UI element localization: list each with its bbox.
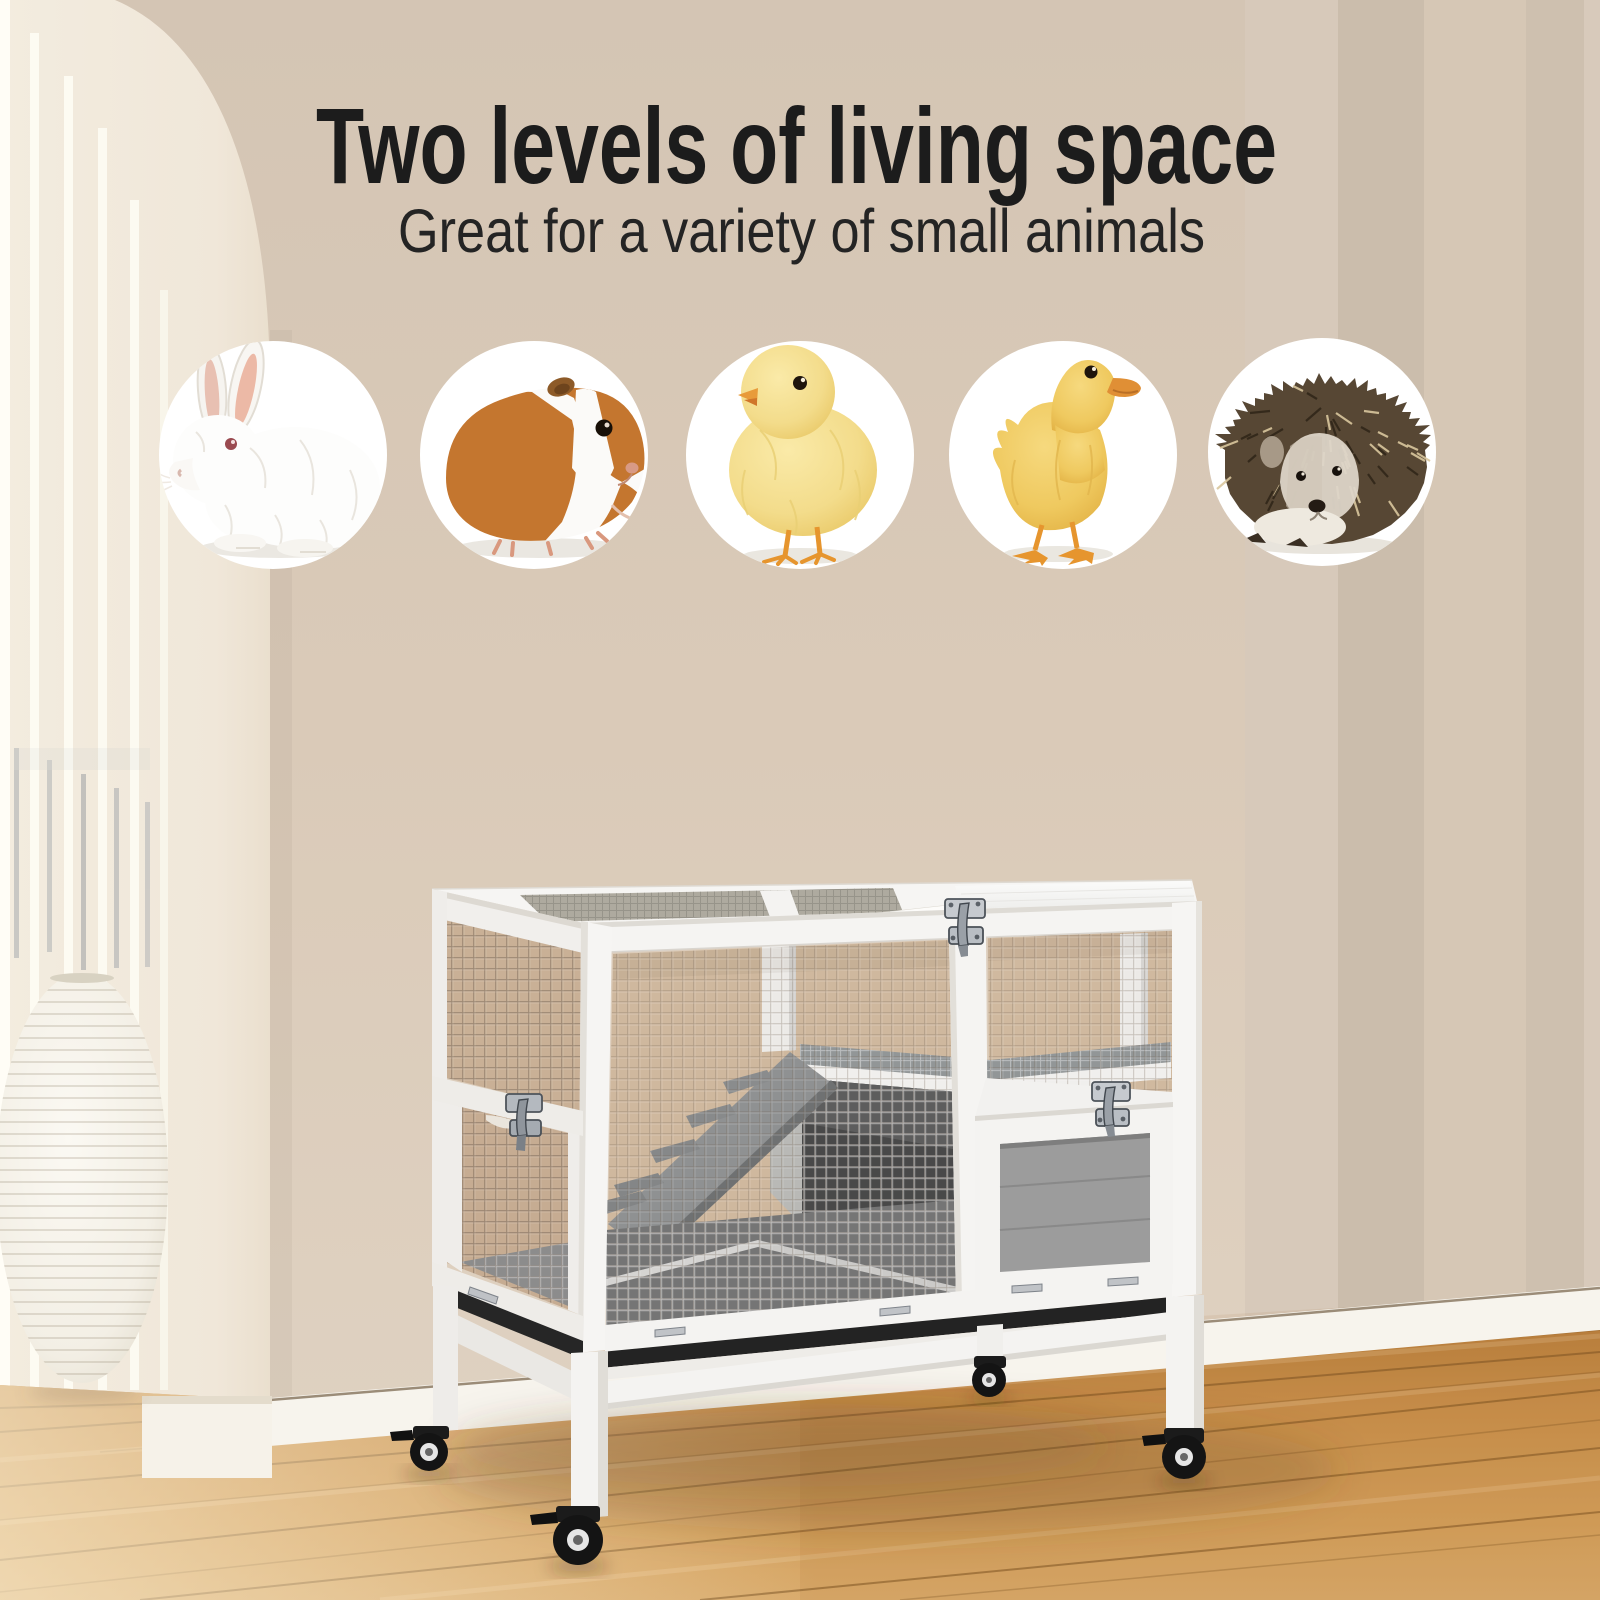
- svg-text:Great for a variety of small a: Great for a variety of small animals: [398, 197, 1205, 265]
- svg-text:Two levels of living space: Two levels of living space: [316, 85, 1277, 206]
